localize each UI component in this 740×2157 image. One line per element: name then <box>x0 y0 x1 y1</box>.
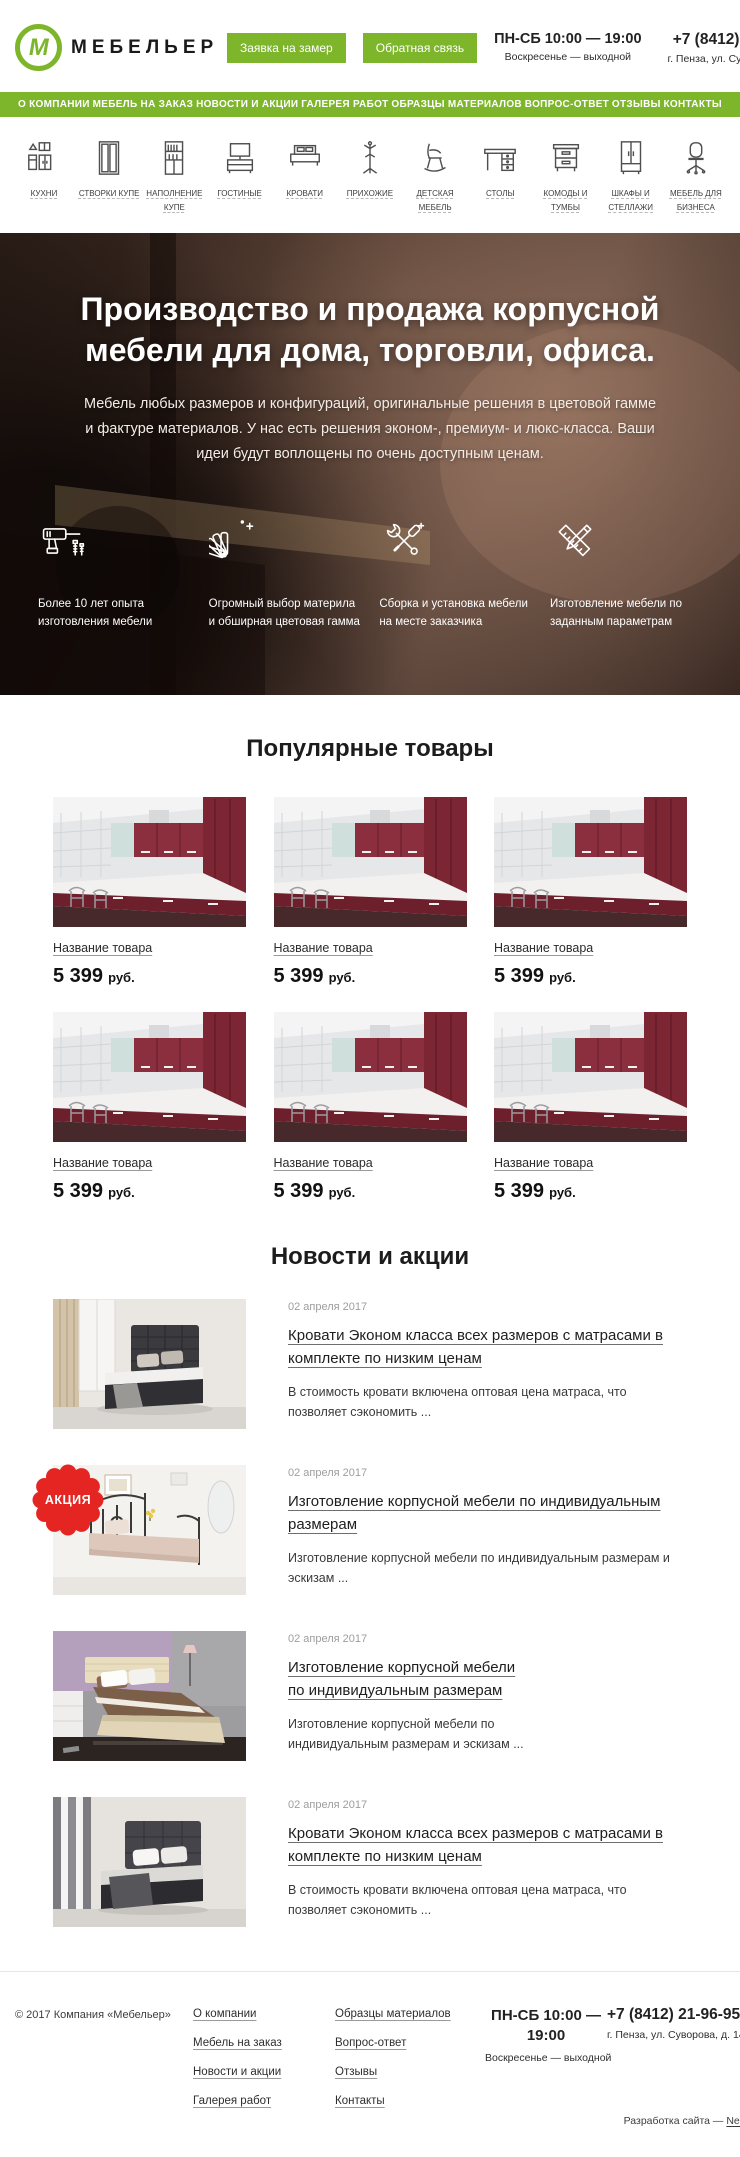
hero-feature: Огромный выбор материла и обширная цвето… <box>209 516 361 632</box>
product-name-link[interactable]: Название товара <box>494 1156 593 1170</box>
category-item[interactable]: МЕБЕЛЬ ДЛЯ БИЗНЕСА <box>664 138 728 216</box>
product-name-link[interactable]: Название товара <box>53 941 152 955</box>
news-excerpt: В стоимость кровати включена оптовая цен… <box>288 1880 687 1920</box>
news-item: 02 апреля 2017 Изготовление корпусной ме… <box>53 1631 687 1761</box>
kitchen-icon <box>25 138 63 178</box>
phone-number: +7 (8412) 21-96-95 <box>668 31 740 49</box>
product-card: Название товара 5 399руб. <box>274 797 467 988</box>
footer-link[interactable]: Отзывы <box>335 2066 477 2078</box>
kids-furniture-icon <box>416 138 454 178</box>
product-image[interactable] <box>274 797 467 927</box>
product-name-link[interactable]: Название товара <box>53 1156 152 1170</box>
category-item[interactable]: СТОЛЫ <box>468 138 532 201</box>
footer-address: г. Пенза, ул. Суворова, д. 148 <box>607 2029 740 2041</box>
news-heading: Новости и акции <box>0 1243 740 1271</box>
header: М МЕБЕЛЬЕР Заявка на замер Обратная связ… <box>0 0 740 92</box>
nav-item[interactable]: ВОПРОС-ОТВЕТ <box>525 99 609 110</box>
category-item[interactable]: ДЕТСКАЯ МЕБЕЛЬ <box>403 138 467 216</box>
footer-links-col1: О компании Мебель на заказ Новости и акц… <box>193 2006 335 2107</box>
news-section: Новости и акции 02 апреля 2017 Кровати Э… <box>0 1243 740 1927</box>
footer-link[interactable]: О компании <box>193 2008 335 2020</box>
feature-text: Сборка и установка мебели на месте заказ… <box>379 595 531 632</box>
feature-text: Более 10 лет опыта изготовления мебели <box>38 595 190 632</box>
logo-m-icon: М <box>15 24 62 71</box>
category-label: КРОВАТИ <box>287 187 323 201</box>
nav-item[interactable]: О КОМПАНИИ <box>18 99 90 110</box>
hero-feature: Изготовление мебели по заданным параметр… <box>550 516 702 632</box>
news-text: 02 апреля 2017 Кровати Эконом класса все… <box>288 1797 687 1927</box>
news-excerpt: В стоимость кровати включена оптовая цен… <box>288 1382 687 1422</box>
product-image[interactable] <box>274 1012 467 1142</box>
product-card: Название товара 5 399руб. <box>53 1012 246 1203</box>
drafting-icon <box>550 516 600 566</box>
news-image-link[interactable] <box>53 1631 246 1761</box>
news-item: 02 апреля 2017 Кровати Эконом класса все… <box>53 1299 687 1429</box>
hero-feature: Сборка и установка мебели на месте заказ… <box>379 516 531 632</box>
product-card: Название товара 5 399руб. <box>494 797 687 988</box>
feedback-button[interactable]: Обратная связь <box>363 33 477 63</box>
credits-link[interactable]: Netriks <box>726 2115 740 2127</box>
address: г. Пенза, ул. Суворова, д. 148 <box>668 53 740 65</box>
bed-icon <box>286 138 324 178</box>
footer: © 2017 Компания «Мебельер» О компании Ме… <box>0 1971 740 2157</box>
nav-item[interactable]: МЕБЕЛЬ НА ЗАКАЗ <box>93 99 194 110</box>
news-date: 02 апреля 2017 <box>288 1301 687 1313</box>
products-grid: Название товара 5 399руб. Название товар… <box>53 797 687 1203</box>
hero-title: Производство и продажа корпусной мебели … <box>70 233 670 371</box>
wardrobe-icon <box>612 138 650 178</box>
category-label: КУХНИ <box>31 187 58 201</box>
nav-item[interactable]: ОБРАЗЦЫ МАТЕРИАЛОВ <box>391 99 522 110</box>
logo-text: МЕБЕЛЬЕР <box>71 37 218 59</box>
bed-dark-image <box>53 1299 246 1429</box>
color-fan-icon <box>209 516 259 566</box>
category-item[interactable]: ГОСТИНЫЕ <box>208 138 272 201</box>
footer-hours: ПН-СБ 10:00 — 19:00 Воскресенье — выходн… <box>485 2006 607 2065</box>
main-nav: О КОМПАНИИ МЕБЕЛЬ НА ЗАКАЗ НОВОСТИ И АКЦ… <box>0 92 740 117</box>
news-text: 02 апреля 2017 Изготовление корпусной ме… <box>288 1631 687 1761</box>
category-item[interactable]: СТВОРКИ КУПЕ <box>77 138 141 201</box>
living-room-icon <box>221 138 259 178</box>
category-label: ГОСТИНЫЕ <box>217 187 261 201</box>
category-bar: КУХНИ СТВОРКИ КУПЕ НАПОЛНЕНИЕ КУПЕ ГОСТИ… <box>0 117 740 233</box>
product-image[interactable] <box>494 1012 687 1142</box>
popular-products-section: Популярные товары Название товара 5 399р… <box>0 735 740 1203</box>
feature-text: Огромный выбор материла и обширная цвето… <box>209 595 361 632</box>
news-title-link[interactable]: Кровати Эконом класса всех размеров с ма… <box>288 1324 687 1371</box>
copyright: © 2017 Компания «Мебельер» <box>15 2006 193 2021</box>
request-measure-button[interactable]: Заявка на замер <box>227 33 346 63</box>
badge-label: АКЦИЯ <box>28 1460 108 1540</box>
news-date: 02 апреля 2017 <box>288 1799 687 1811</box>
category-item[interactable]: КУХНИ <box>12 138 76 201</box>
product-name-link[interactable]: Название товара <box>274 1156 373 1170</box>
news-item: АКЦИЯ 02 апреля 2017 Изготовление корпус… <box>53 1465 687 1595</box>
product-price: 5 399руб. <box>494 1180 687 1203</box>
category-label: ДЕТСКАЯ МЕБЕЛЬ <box>403 187 467 216</box>
logo[interactable]: М МЕБЕЛЬЕР <box>15 24 227 71</box>
product-price: 5 399руб. <box>274 1180 467 1203</box>
category-item[interactable]: ШКАФЫ И СТЕЛЛАЖИ <box>599 138 663 216</box>
site-credits: Разработка сайта — Netriks <box>607 2115 740 2127</box>
news-date: 02 апреля 2017 <box>288 1633 687 1645</box>
feature-text: Изготовление мебели по заданным параметр… <box>550 595 702 632</box>
product-price: 5 399руб. <box>53 1180 246 1203</box>
bed-dark2-image <box>53 1797 246 1927</box>
footer-contacts: +7 (8412) 21-96-95 г. Пенза, ул. Суворов… <box>607 2006 740 2127</box>
news-title-link[interactable]: Изготовление корпусной мебели по индивид… <box>288 1490 687 1537</box>
footer-phone: +7 (8412) 21-96-95 <box>607 2006 740 2024</box>
tools-icon <box>379 516 429 566</box>
footer-link[interactable]: Контакты <box>335 2095 477 2107</box>
product-card: Название товара 5 399руб. <box>53 797 246 988</box>
drill-icon <box>38 516 88 566</box>
product-card: Название товара 5 399руб. <box>494 1012 687 1203</box>
nav-item[interactable]: КОНТАКТЫ <box>664 99 722 110</box>
coat-rack-icon <box>351 138 389 178</box>
footer-link[interactable]: Мебель на заказ <box>193 2037 335 2049</box>
hero-features: Более 10 лет опыта изготовления мебели О… <box>0 516 740 632</box>
category-item[interactable]: КРОВАТИ <box>273 138 337 201</box>
news-list: 02 апреля 2017 Кровати Эконом класса все… <box>53 1299 687 1927</box>
category-label: МЕБЕЛЬ ДЛЯ БИЗНЕСА <box>664 187 728 216</box>
news-title-link[interactable]: Кровати Эконом класса всех размеров с ма… <box>288 1822 687 1869</box>
nav-item[interactable]: ГАЛЕРЕЯ РАБОТ <box>301 99 388 110</box>
category-item[interactable]: НАПОЛНЕНИЕ КУПЕ <box>142 138 206 216</box>
footer-links-col2: Образцы материалов Вопрос-ответ Отзывы К… <box>335 2006 477 2107</box>
office-chair-icon <box>677 138 715 178</box>
news-text: 02 апреля 2017 Изготовление корпусной ме… <box>288 1465 687 1595</box>
product-card: Название товара 5 399руб. <box>274 1012 467 1203</box>
product-price: 5 399руб. <box>494 965 687 988</box>
category-label: КОМОДЫ И ТУМБЫ <box>534 187 598 216</box>
news-image-link[interactable] <box>53 1299 246 1429</box>
category-label: СТОЛЫ <box>486 187 515 201</box>
hero-feature: Более 10 лет опыта изготовления мебели <box>38 516 190 632</box>
header-contacts: ПН-СБ 10:00 — 19:00 Воскресенье — выходн… <box>494 31 740 65</box>
product-image[interactable] <box>53 1012 246 1142</box>
news-title-link[interactable]: Изготовление корпусной мебели по индивид… <box>288 1656 520 1703</box>
category-item[interactable]: КОМОДЫ И ТУМБЫ <box>534 138 598 216</box>
product-image[interactable] <box>494 797 687 927</box>
wardrobe-fill-icon <box>155 138 193 178</box>
footer-link[interactable]: Вопрос-ответ <box>335 2037 477 2049</box>
sliding-doors-icon <box>90 138 128 178</box>
footer-link[interactable]: Новости и акции <box>193 2066 335 2078</box>
phone-block: +7 (8412) 21-96-95 г. Пенза, ул. Суворов… <box>668 31 740 65</box>
news-image-link[interactable] <box>53 1797 246 1927</box>
category-item[interactable]: ПРИХОЖИЕ <box>338 138 402 201</box>
product-name-link[interactable]: Название товара <box>494 941 593 955</box>
page: М МЕБЕЛЬЕР Заявка на замер Обратная связ… <box>0 0 740 2157</box>
news-item: 02 апреля 2017 Кровати Эконом класса все… <box>53 1797 687 1927</box>
bed-wood-image <box>53 1631 246 1761</box>
category-label: НАПОЛНЕНИЕ КУПЕ <box>142 187 206 216</box>
footer-link[interactable]: Образцы материалов <box>335 2008 477 2020</box>
category-label: СТВОРКИ КУПЕ <box>79 187 140 201</box>
hero-banner: Производство и продажа корпусной мебели … <box>0 233 740 695</box>
category-label: ПРИХОЖИЕ <box>347 187 393 201</box>
products-heading: Популярные товары <box>0 735 740 763</box>
nav-item[interactable]: НОВОСТИ И АКЦИИ <box>196 99 298 110</box>
desk-icon <box>481 138 519 178</box>
news-date: 02 апреля 2017 <box>288 1467 687 1479</box>
news-text: 02 апреля 2017 Кровати Эконом класса все… <box>288 1299 687 1429</box>
drawers-icon <box>547 138 585 178</box>
work-hours: ПН-СБ 10:00 — 19:00 Воскресенье — выходн… <box>494 31 641 63</box>
nav-item[interactable]: ОТЗЫВЫ <box>612 99 661 110</box>
product-name-link[interactable]: Название товара <box>274 941 373 955</box>
hero-subtitle: Мебель любых размеров и конфигураций, ор… <box>80 392 660 468</box>
product-image[interactable] <box>53 797 246 927</box>
news-image-link[interactable]: АКЦИЯ <box>53 1465 246 1595</box>
footer-link[interactable]: Галерея работ <box>193 2095 335 2107</box>
news-excerpt: Изготовление корпусной мебели по индивид… <box>288 1548 687 1588</box>
category-label: ШКАФЫ И СТЕЛЛАЖИ <box>599 187 663 216</box>
product-price: 5 399руб. <box>274 965 467 988</box>
promo-badge: АКЦИЯ <box>28 1460 108 1540</box>
news-excerpt: Изготовление корпусной мебели по индивид… <box>288 1714 550 1754</box>
product-price: 5 399руб. <box>53 965 246 988</box>
